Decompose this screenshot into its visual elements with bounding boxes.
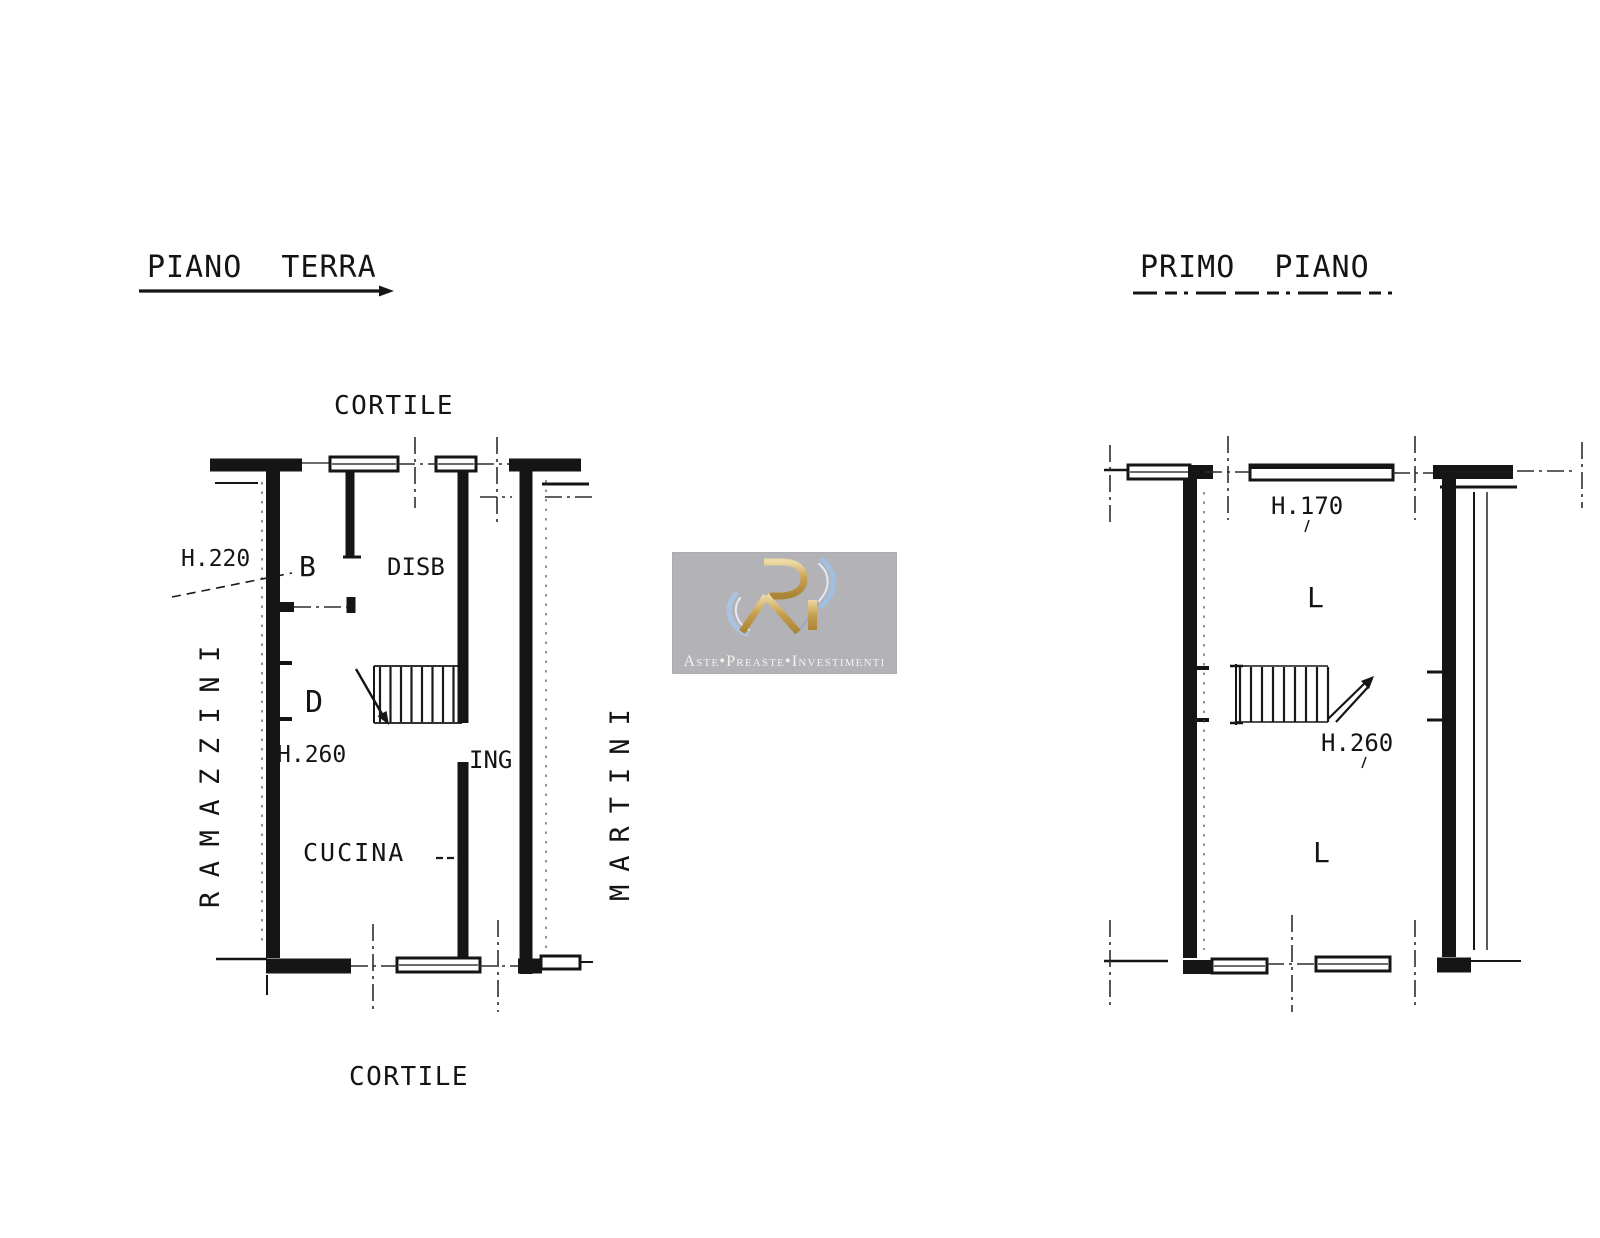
dim-tick xyxy=(1305,520,1309,532)
watermark-caption: Aste•Preaste•Investimenti xyxy=(672,653,897,671)
courtyard-label-bottom: CORTILE xyxy=(349,1062,469,1092)
floor-plan-document: PIANO TERRA CORTILE xyxy=(0,0,1600,1238)
street-label-martini: MARTINI xyxy=(605,696,636,901)
courtyard-label-top: CORTILE xyxy=(334,391,454,421)
ground-floor-title: PIANO TERRA xyxy=(147,250,377,285)
room-label-cucina: CUCINA xyxy=(303,838,405,867)
first-floor-title: PRIMO PIANO xyxy=(1140,250,1370,285)
title-underline-arrow xyxy=(379,286,394,297)
first-floor-axis-lines xyxy=(1110,436,1582,1012)
stair-direction-arrow xyxy=(1328,681,1367,719)
first-floor-stairs xyxy=(1230,664,1374,725)
dim-label-h220: H.220 xyxy=(181,546,250,572)
dim-label-h260: H.260 xyxy=(1321,729,1393,757)
room-label-disb: DISB xyxy=(387,553,445,581)
ground-floor-stairs xyxy=(356,666,462,725)
street-label-ramazzini: RAMAZZINI xyxy=(195,631,226,908)
ground-floor-walls xyxy=(210,457,593,995)
room-label-bath: B xyxy=(299,550,316,583)
monogram-roof-left xyxy=(742,596,766,632)
watermark: Aste•Preaste•Investimenti xyxy=(672,552,897,674)
stair-direction-arrow xyxy=(356,669,386,721)
window xyxy=(541,956,580,969)
dim-label-h170: H.170 xyxy=(1271,492,1343,520)
ground-floor-labels: H.220 B DISB D H.260 ING CUCINA CORTILE … xyxy=(172,546,636,1092)
dim-label-h260: H.260 xyxy=(277,742,346,768)
stair-direction-arrow xyxy=(1336,686,1369,722)
room-label-l-lower: L xyxy=(1313,836,1330,869)
first-floor-walls xyxy=(1104,465,1521,973)
dim-tick xyxy=(1362,757,1366,768)
ground-floor-axis-lines xyxy=(262,437,593,1012)
room-label-d: D xyxy=(305,685,323,720)
ground-floor-plan: PIANO TERRA CORTILE xyxy=(139,250,636,1092)
room-label-ing: ING xyxy=(469,746,512,774)
monogram-bowl xyxy=(764,562,804,596)
monogram-roof-right xyxy=(766,596,798,632)
monogram-i-bar xyxy=(808,600,817,630)
stair-arrow-head xyxy=(1361,676,1374,689)
rai-monogram-icon xyxy=(710,554,860,642)
first-floor-plan: PRIMO PIANO xyxy=(1104,250,1582,1012)
room-label-l-upper: L xyxy=(1307,581,1324,614)
first-floor-labels: H.170 L H.260 L xyxy=(1271,492,1393,869)
